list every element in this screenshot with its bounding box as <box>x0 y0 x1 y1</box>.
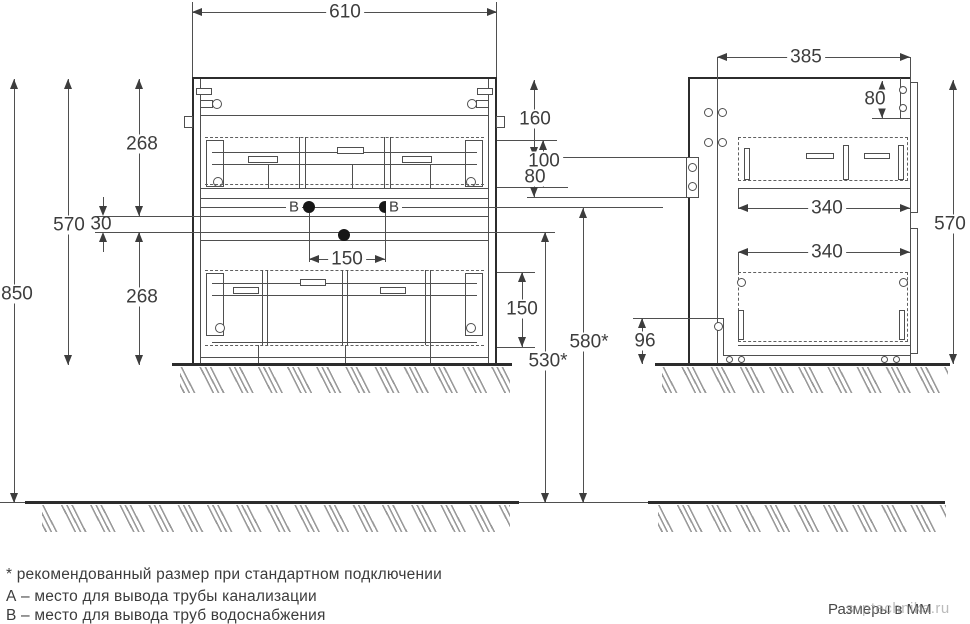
drawing-line <box>466 177 476 187</box>
drawing-line <box>425 270 426 345</box>
drawing-line <box>213 177 223 187</box>
drawing-line <box>738 310 744 340</box>
drain-outlet-point-a <box>338 229 350 241</box>
drawing-line <box>64 79 72 89</box>
drawing-line <box>910 57 911 78</box>
water-supply-level-line <box>200 207 663 208</box>
upper-drawer-front <box>910 82 918 213</box>
dim-overall-height: 850 <box>0 285 36 304</box>
drawing-line <box>95 216 489 217</box>
drawing-line <box>497 347 535 348</box>
drawing-line <box>205 270 484 271</box>
drawing-line <box>497 140 557 141</box>
drawing-line <box>738 188 910 189</box>
drawing-line <box>726 356 733 363</box>
dim-upper-section: 268 <box>123 135 161 154</box>
drawing-line <box>212 164 477 165</box>
mount-screw-icon <box>212 99 222 109</box>
drawing-line <box>135 232 143 242</box>
drawing-line <box>200 198 488 199</box>
dim-cabinet-height: 570 <box>50 216 88 235</box>
dim-upper-drawer-depth: 340 <box>808 199 846 218</box>
dim-lower-drawer-depth: 340 <box>808 243 846 262</box>
drawing-line <box>899 86 907 94</box>
drawing-line <box>430 345 431 364</box>
lower-drawer-box <box>738 272 908 342</box>
drawing-line <box>899 278 908 287</box>
drawing-line <box>212 342 477 343</box>
drawing-line <box>688 182 697 191</box>
dim-top-rail-depth: 80 <box>861 90 888 109</box>
drawing-line <box>662 367 948 393</box>
drawing-line <box>262 270 263 345</box>
drawing-line <box>10 79 18 89</box>
dim-line-580 <box>583 208 584 503</box>
drawing-line <box>64 355 72 365</box>
drawing-line <box>180 367 510 393</box>
drawing-line <box>487 8 497 16</box>
drawing-line <box>384 137 385 188</box>
drawing-line <box>949 80 957 90</box>
drawing-line <box>658 505 946 532</box>
dim-base-height: 96 <box>631 332 658 351</box>
dim-water-supply-height: 580* <box>566 333 611 352</box>
front-ground-line <box>172 363 512 366</box>
drawing-line <box>900 53 910 61</box>
drawing-line <box>300 279 326 286</box>
drawing-line <box>688 318 723 319</box>
drawing-line <box>688 163 697 172</box>
drawing-line <box>638 354 646 364</box>
legend-asterisk-note: * рекомендованный размер при стандартном… <box>6 566 442 584</box>
drawing-line <box>518 337 526 347</box>
dim-side-cabinet-height: 570 <box>931 215 969 234</box>
drawing-line <box>527 197 686 198</box>
drawing-line <box>10 493 18 503</box>
drawing-line <box>530 80 538 90</box>
drawing-line <box>212 295 477 296</box>
drawing-line <box>949 354 957 364</box>
drawing-line <box>184 116 193 128</box>
drawing-line <box>200 188 488 189</box>
drawing-line <box>215 323 225 333</box>
drawing-line <box>881 356 888 363</box>
drawing-line <box>898 145 904 180</box>
drawing-line <box>135 79 143 89</box>
drawing-line <box>717 53 727 61</box>
drawing-line <box>488 79 489 365</box>
drawing-line <box>530 187 538 197</box>
drawing-line <box>385 213 386 262</box>
drawing-line <box>42 505 510 532</box>
drawing-line <box>337 147 364 154</box>
drawing-line <box>305 137 306 188</box>
drawing-line <box>477 88 493 95</box>
drawing-line <box>466 323 476 333</box>
drawing-line <box>248 156 278 163</box>
drawing-line <box>718 108 727 117</box>
drawing-line <box>744 148 750 180</box>
drawing-line <box>299 137 300 188</box>
dim-depth: 385 <box>787 48 825 67</box>
drawing-line <box>135 206 143 216</box>
drawing-line <box>375 255 385 263</box>
drawing-line <box>496 116 505 128</box>
watermark: svptechnika.ru <box>846 600 950 617</box>
point-b-label: В <box>286 200 302 215</box>
drawing-line <box>192 8 202 16</box>
drain-level-line <box>95 232 555 233</box>
drawing-line <box>900 118 910 119</box>
drawing-line <box>212 283 477 284</box>
drawing-line <box>476 100 489 108</box>
floor-line-left <box>25 501 519 504</box>
drawing-line <box>737 278 746 287</box>
drawing-line <box>718 138 727 147</box>
cabinet-top <box>192 77 497 79</box>
drawing-line <box>233 287 259 294</box>
drawing-line <box>390 137 391 188</box>
drawing-line <box>738 248 748 256</box>
drawing-line <box>579 493 587 503</box>
drawing-line <box>196 88 212 95</box>
side-cabinet-top <box>688 77 911 79</box>
drawing-line <box>900 78 901 118</box>
drawing-line <box>380 287 406 294</box>
drawing-line <box>135 355 143 365</box>
drawing-line <box>342 270 343 345</box>
drawing-line <box>704 138 713 147</box>
dim-lower-section: 268 <box>123 288 161 307</box>
legend-point-b-note: В – место для вывода труб водоснабжения <box>6 607 326 624</box>
drawing-line <box>430 270 431 345</box>
drawing-line <box>872 118 900 119</box>
drawing-line <box>738 356 745 363</box>
dim-b-spacing: 150 <box>328 250 366 269</box>
drawing-line <box>899 310 905 340</box>
drawing-line <box>723 318 724 355</box>
lower-drawer-front <box>910 228 918 354</box>
drawing-line <box>200 115 488 116</box>
drawing-line <box>843 145 849 180</box>
drawing-line <box>200 357 488 358</box>
drawing-line <box>539 140 547 150</box>
side-ground-line <box>655 363 950 366</box>
drawing-line <box>900 248 910 256</box>
dim-top-to-bracket: 160 <box>516 110 554 129</box>
dim-bracket-height: 80 <box>521 168 548 187</box>
drawing-line <box>541 232 549 242</box>
drawing-line <box>899 104 907 112</box>
legend-point-a-note: А – место для вывода трубы канализации <box>6 588 317 606</box>
drawing-line <box>864 153 890 159</box>
drawing-line <box>541 493 549 503</box>
drawing-line <box>900 204 910 212</box>
floor-line-right <box>648 501 945 504</box>
drawing-line <box>258 345 259 364</box>
drawing-line <box>497 272 535 273</box>
drawing-line <box>738 204 748 212</box>
dim-drain-height: 530* <box>525 352 570 371</box>
drawing-line <box>103 242 104 252</box>
side-back-wall <box>688 77 690 365</box>
dim-lower-drawer-inner: 150 <box>503 300 541 319</box>
point-b-label: В <box>386 200 402 215</box>
drawing-line <box>714 322 723 331</box>
drawing-line <box>402 156 432 163</box>
drawing-line <box>738 345 910 346</box>
drawing-line <box>878 108 886 118</box>
drawing-line <box>638 318 646 328</box>
drawing-line <box>345 345 346 364</box>
technical-drawing-vanity-cabinet: 610 <box>0 0 970 624</box>
drawing-line <box>309 255 319 263</box>
drawing-line <box>806 153 834 159</box>
drawing-line <box>267 270 268 345</box>
upper-drawer-box <box>738 137 908 181</box>
drawing-line <box>579 208 587 218</box>
drawing-line <box>347 270 348 345</box>
drawing-line <box>893 356 900 363</box>
drawing-line <box>200 79 201 365</box>
dim-front-width: 610 <box>326 3 364 22</box>
water-outlet-point-b <box>303 201 315 213</box>
drawing-line <box>205 137 484 138</box>
dim-center-gap: 30 <box>90 215 111 234</box>
drawing-line <box>205 184 484 185</box>
mount-screw-icon <box>467 99 477 109</box>
drawing-line <box>518 272 526 282</box>
drawing-line <box>704 108 713 117</box>
